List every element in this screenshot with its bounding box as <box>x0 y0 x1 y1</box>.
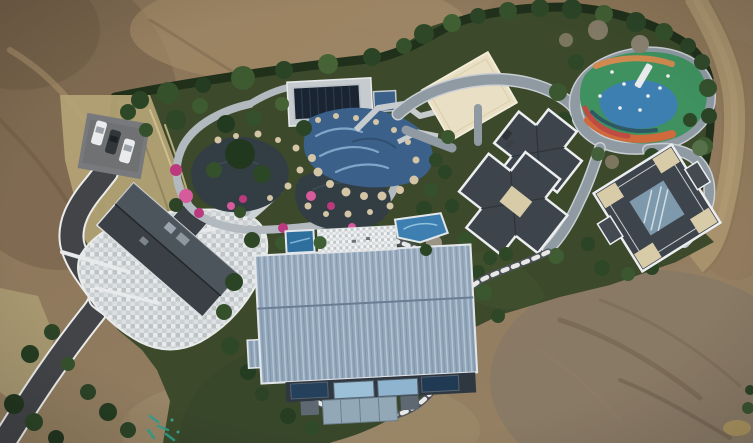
aerial-photograph <box>0 0 753 443</box>
aerial-photo-frame <box>0 0 753 443</box>
vignette <box>0 0 753 443</box>
